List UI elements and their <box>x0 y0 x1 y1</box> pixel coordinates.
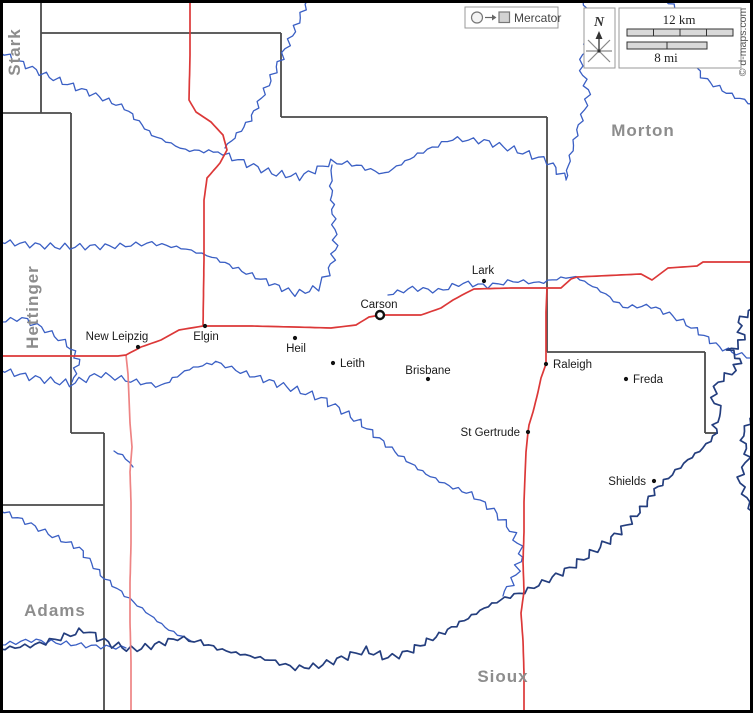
map-canvas: StarkHettingerMortonAdamsSioux CarsonNew… <box>0 0 753 713</box>
town-label-leith: Leith <box>340 358 365 370</box>
north-label: N <box>593 15 605 30</box>
town-label-lark: Lark <box>472 265 495 277</box>
projection-label: Mercator <box>514 11 561 25</box>
map-square-icon <box>499 12 510 23</box>
town-marker-heil <box>293 336 297 340</box>
town-marker-st-gertrude <box>526 430 530 434</box>
county-label-morton: Morton <box>611 121 675 140</box>
town-marker-lark <box>482 279 486 283</box>
copyright-credit: © d-maps.com <box>737 8 749 77</box>
town-marker-elgin <box>203 324 207 328</box>
county-label-sioux: Sioux <box>477 667 528 686</box>
county-label-stark: Stark <box>5 28 24 76</box>
scale-mi-label: 8 mi <box>654 50 678 65</box>
town-label-brisbane: Brisbane <box>405 365 450 377</box>
town-marker-new-leipzig <box>136 345 140 349</box>
town-label-new-leipzig: New Leipzig <box>86 331 149 343</box>
projection-legend: Mercator <box>465 7 561 28</box>
town-marker-brisbane <box>426 377 430 381</box>
map-page: StarkHettingerMortonAdamsSioux CarsonNew… <box>0 0 753 713</box>
town-label-st-gertrude: St Gertrude <box>461 427 520 439</box>
town-label-freda: Freda <box>633 374 664 386</box>
town-marker-leith <box>331 361 335 365</box>
county-label-adams: Adams <box>24 601 86 620</box>
town-label-carson: Carson <box>360 299 397 311</box>
town-marker-shields <box>652 479 656 483</box>
county-seat-marker-carson <box>376 311 384 319</box>
compass: N <box>584 8 615 68</box>
county-label-hettinger: Hettinger <box>23 265 42 349</box>
compass-center-dot <box>597 49 600 52</box>
town-label-raleigh: Raleigh <box>553 359 592 371</box>
town-marker-freda <box>624 377 628 381</box>
scale-bar: 12 km 8 mi <box>619 8 741 68</box>
town-label-shields: Shields <box>608 476 646 488</box>
scale-km-label: 12 km <box>663 12 696 27</box>
globe-circle-icon <box>472 12 483 23</box>
town-marker-raleigh <box>544 362 548 366</box>
town-label-heil: Heil <box>286 343 306 355</box>
town-label-elgin: Elgin <box>193 331 219 343</box>
